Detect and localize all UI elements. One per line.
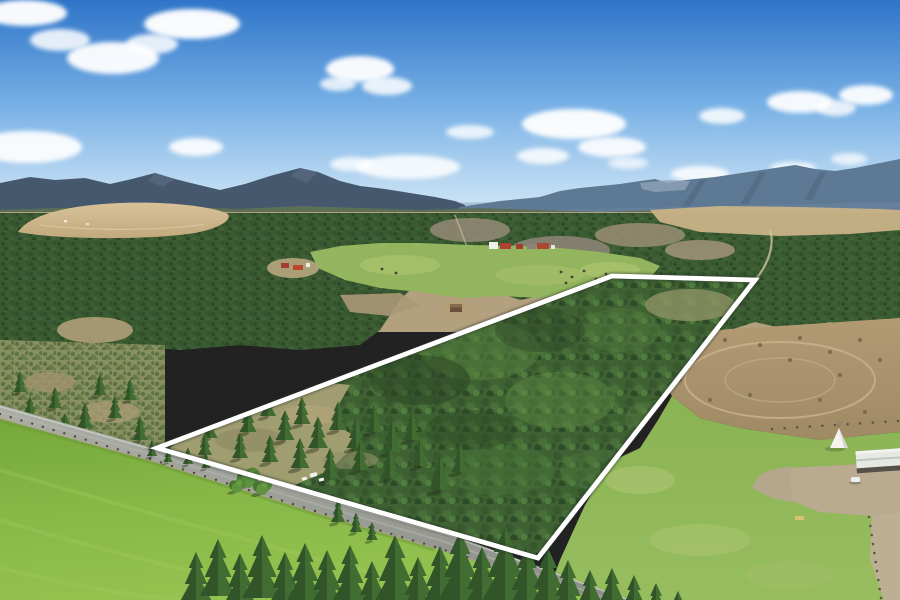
fence-post [897,420,900,423]
fence-post [872,543,875,546]
fence-post [127,451,129,453]
fence-post [873,552,876,555]
fence-post [771,428,774,431]
fence-post [226,482,228,484]
fence-post [412,539,414,541]
fence-post [20,419,22,421]
fence-post [248,489,250,491]
fence-post [868,516,871,519]
fence-post [834,424,837,427]
aerial-photo [0,0,900,600]
scene-svg [0,0,900,600]
distant-structure [64,220,67,222]
fence-post [10,416,12,418]
cloud [320,77,356,91]
cloud [517,148,569,164]
fence-post [859,422,862,425]
fence-post [434,546,436,548]
livestock-dot [381,268,384,271]
cloud [831,153,867,165]
fence-post [193,472,195,474]
fence-post [215,479,217,481]
livestock-dot [395,272,398,275]
parcel-ne-meadow [645,289,735,321]
cloud [522,109,626,139]
fence-post [314,510,316,512]
fence-post [63,432,65,434]
fence-post [877,579,880,582]
fence-post [42,426,44,428]
cloud [816,100,856,116]
fence-post [445,549,447,551]
livestock-dot [583,270,586,273]
fence-post [876,570,879,573]
fence-post [390,533,392,535]
fence-post [117,448,119,450]
fence-post [325,513,327,515]
fence-post [379,529,381,531]
fence-post [796,426,799,429]
cloud [362,77,412,95]
fence-post [182,468,184,470]
farmstead-left [267,258,319,278]
cabin-clearing [438,302,478,320]
fence-post [783,427,786,430]
cloud [126,34,178,54]
fence-post [401,536,403,538]
fence-post [870,534,873,537]
distant-structure [86,223,89,225]
fence-post [884,421,887,424]
fence-post [204,475,206,477]
fence-post [281,499,283,501]
cloud [578,137,646,157]
livestock-dot [560,271,563,274]
fence-post [95,442,97,444]
fence-post [874,561,877,564]
fence-post [872,421,875,424]
yellow-trailer [795,516,804,520]
fence-post [846,423,849,426]
fence-post [52,429,54,431]
fence-post [347,520,349,522]
fence-post [31,422,33,424]
fence-post [270,496,272,498]
fence-post [809,425,812,428]
livestock-dot [571,276,574,279]
fence-post [74,435,76,437]
fence-post [85,439,87,441]
fence-post [138,455,140,457]
fence-post [171,465,173,467]
cloud [608,157,648,169]
fence-post [869,525,872,528]
cloud [169,138,223,156]
fence-post [423,543,425,545]
barn-building [855,448,900,473]
fence-post [821,425,824,428]
cloud [446,125,494,139]
cloud [330,157,374,171]
fence-post [878,588,881,591]
fence-post [303,506,305,508]
fence-post [160,461,162,463]
cloud [699,108,745,124]
livestock-dot [565,282,568,285]
fence-post [880,597,883,600]
fence-post [106,445,108,447]
fence-post [292,503,294,505]
